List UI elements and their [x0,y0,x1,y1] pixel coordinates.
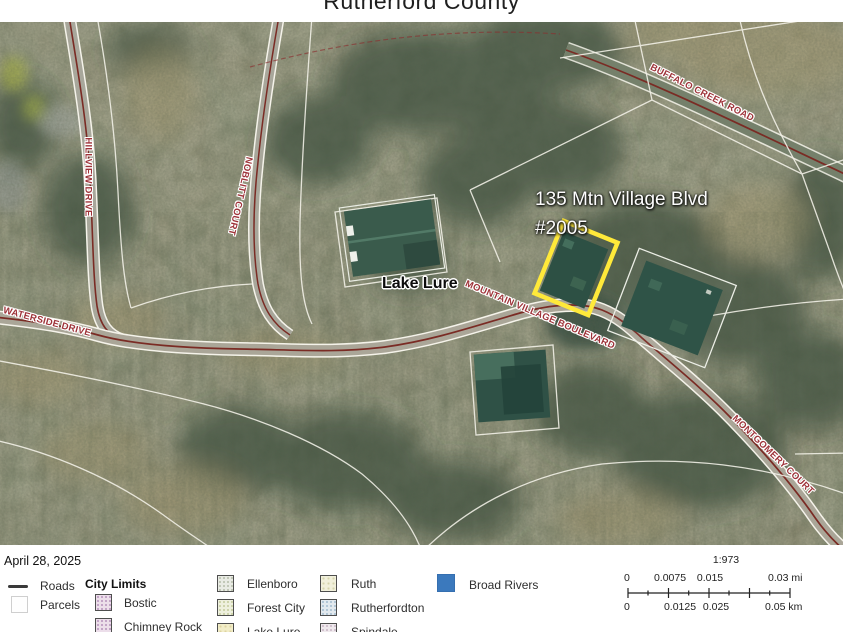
legend-label-broad-rivers: Broad Rivers [469,578,538,592]
scale-bar: 1:973 0 0.0075 0.015 0.03 mi 0 0.0125 0.… [620,554,843,626]
ruth-swatch [320,575,337,592]
scale-ticks [620,586,820,600]
map-canvas[interactable]: 135 Mtn Village Blvd #2005 Lake Lure HIL… [0,22,843,545]
page-title: Rutherford County [0,0,843,13]
scale-mi-3: 0.03 mi [768,572,802,584]
roads-line-icon [8,585,28,588]
legend-label-forest-city: Forest City [247,601,305,615]
lake-lure-swatch [217,623,234,632]
aerial-imagery [0,22,843,545]
legend-label-chimney-rock: Chimney Rock [124,620,202,632]
parcels-swatch [11,596,28,613]
rutherfordton-swatch [320,599,337,616]
spindale-swatch [320,623,337,632]
scale-ratio: 1:973 [690,554,762,566]
legend-label-roads: Roads [40,579,75,593]
bostic-swatch [95,594,112,611]
scale-mi-0: 0 [624,572,630,584]
scale-mi-1: 0.0075 [650,572,690,584]
legend-label-spindale: Spindale [351,625,398,632]
chimney-rock-swatch [95,618,112,632]
scale-km-2: 0.025 [698,601,734,613]
legend-panel: April 28, 2025 Roads Parcels City Limits… [0,545,843,632]
legend-header-city-limits: City Limits [85,577,146,591]
legend-label-parcels: Parcels [40,598,80,612]
ellenboro-swatch [217,575,234,592]
scale-km-0: 0 [624,601,630,613]
legend-label-lake-lure: Lake Lure [247,625,300,632]
forest-city-swatch [217,599,234,616]
building-south [474,350,551,423]
scale-km-1: 0.0125 [660,601,700,613]
scale-mi-2: 0.015 [692,572,728,584]
legend-label-bostic: Bostic [124,596,157,610]
map-export-page: Rutherford County [0,0,843,632]
scale-km-3: 0.05 km [765,601,802,613]
legend-label-ellenboro: Ellenboro [247,577,298,591]
legend-label-rutherfordton: Rutherfordton [351,601,424,615]
legend-label-ruth: Ruth [351,577,376,591]
map-date: April 28, 2025 [4,554,81,568]
broad-rivers-swatch [437,574,455,592]
